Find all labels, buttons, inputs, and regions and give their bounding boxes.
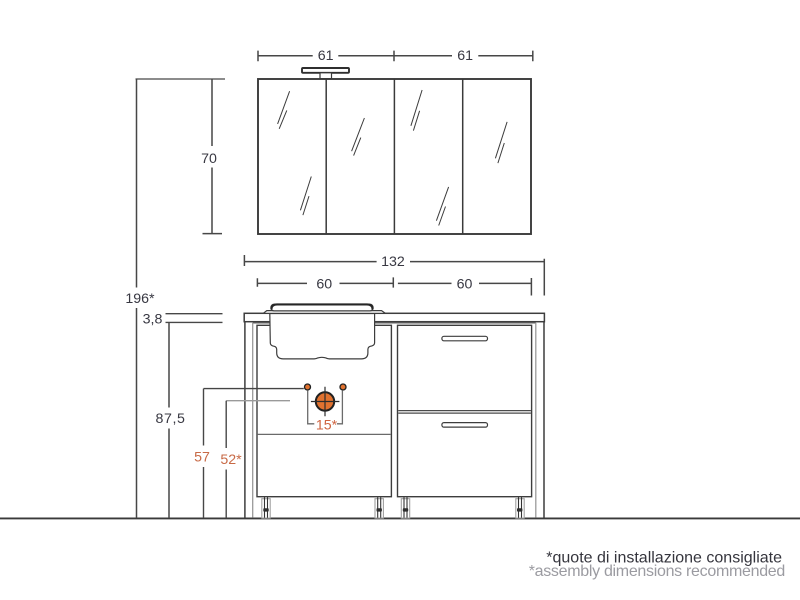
svg-text:196*: 196*: [125, 291, 155, 307]
svg-text:3,8: 3,8: [143, 312, 163, 328]
svg-text:60: 60: [316, 277, 332, 293]
svg-text:60: 60: [457, 277, 473, 293]
svg-text:52*: 52*: [220, 452, 242, 468]
svg-text:61: 61: [318, 48, 334, 64]
svg-text:61: 61: [457, 48, 473, 64]
svg-text:*assembly dimensions recommend: *assembly dimensions recommended: [529, 563, 785, 580]
svg-text:87,5: 87,5: [155, 411, 185, 427]
svg-text:15*: 15*: [316, 417, 338, 433]
svg-text:70: 70: [201, 151, 217, 167]
svg-text:57: 57: [194, 450, 210, 466]
svg-text:132: 132: [381, 254, 405, 270]
